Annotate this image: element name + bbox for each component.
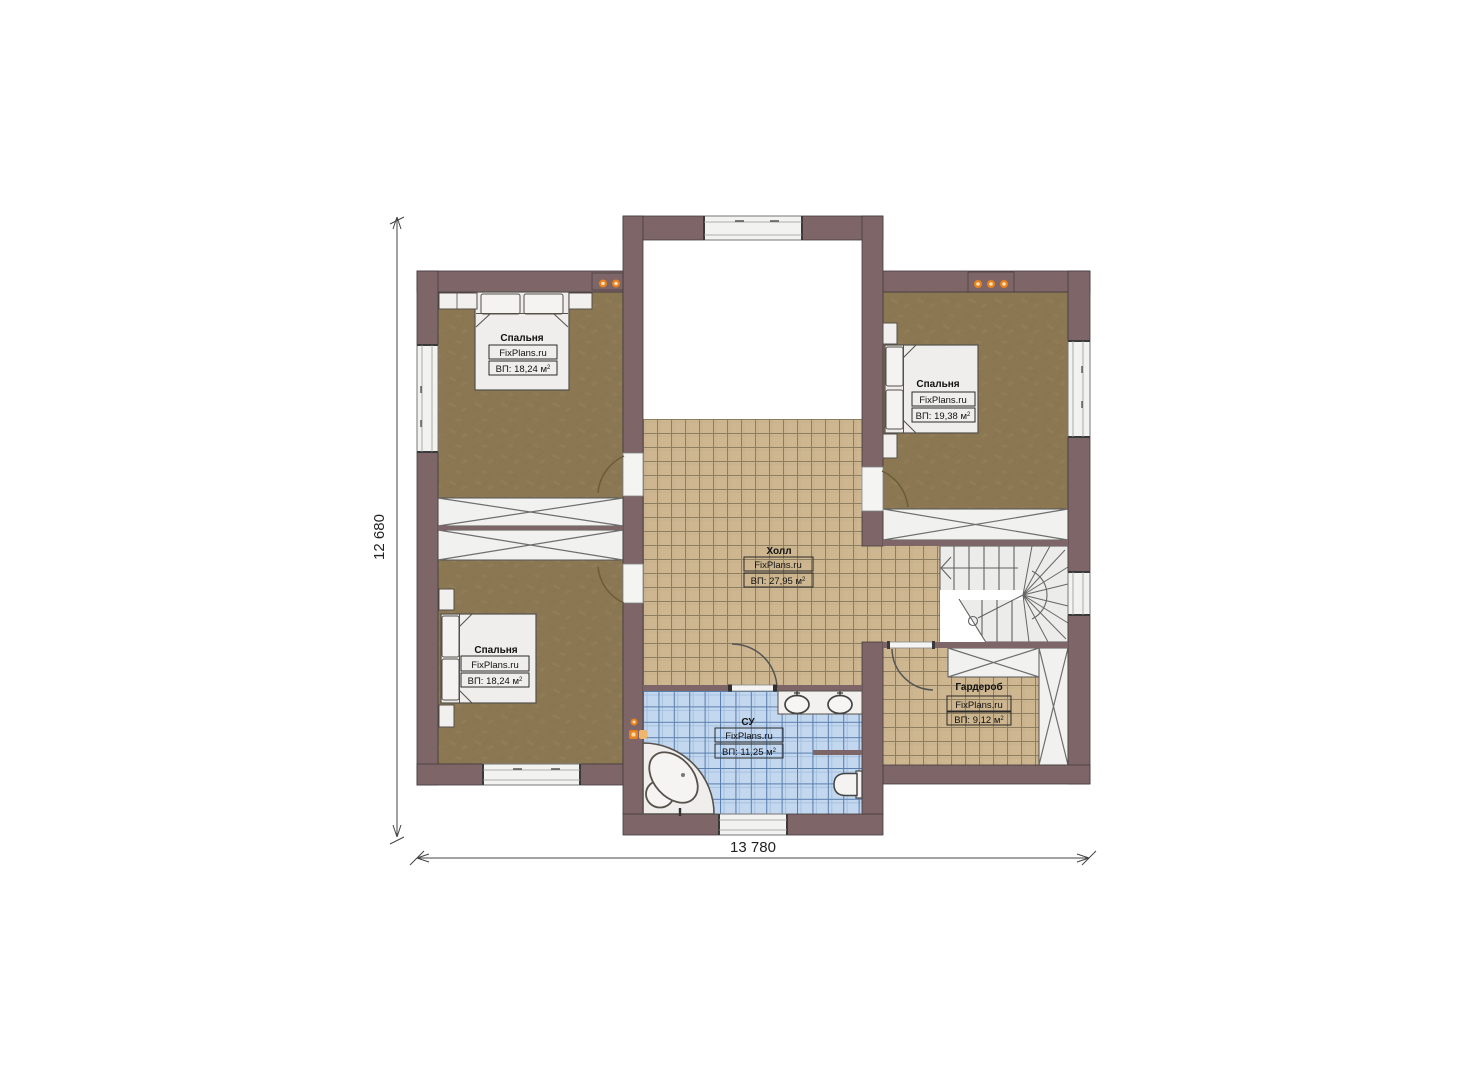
svg-text:Спальня: Спальня <box>500 333 543 344</box>
svg-text:FixPlans.ru: FixPlans.ru <box>919 395 967 406</box>
svg-text:СУ: СУ <box>741 717 755 728</box>
svg-text:FixPlans.ru: FixPlans.ru <box>725 731 773 742</box>
svg-text:FixPlans.ru: FixPlans.ru <box>754 560 802 571</box>
svg-text:FixPlans.ru: FixPlans.ru <box>499 348 547 359</box>
svg-text:Спальня: Спальня <box>474 645 517 656</box>
svg-text:Спальня: Спальня <box>916 379 959 390</box>
svg-text:ВП: 27,95 м2: ВП: 27,95 м2 <box>751 576 806 587</box>
svg-text:ВП: 9,12 м2: ВП: 9,12 м2 <box>954 715 1004 726</box>
svg-text:FixPlans.ru: FixPlans.ru <box>955 700 1003 711</box>
svg-text:Гардероб: Гардероб <box>955 681 1002 693</box>
svg-text:13 780: 13 780 <box>730 839 776 856</box>
svg-text:ВП: 18,24 м2: ВП: 18,24 м2 <box>468 676 523 687</box>
svg-text:12 680: 12 680 <box>371 514 388 560</box>
svg-text:ВП: 19,38 м2: ВП: 19,38 м2 <box>916 411 971 422</box>
svg-text:Холл: Холл <box>766 546 791 557</box>
svg-text:FixPlans.ru: FixPlans.ru <box>471 660 519 671</box>
svg-text:ВП: 11,25 м2: ВП: 11,25 м2 <box>722 747 777 758</box>
svg-text:ВП: 18,24 м2: ВП: 18,24 м2 <box>496 364 551 375</box>
